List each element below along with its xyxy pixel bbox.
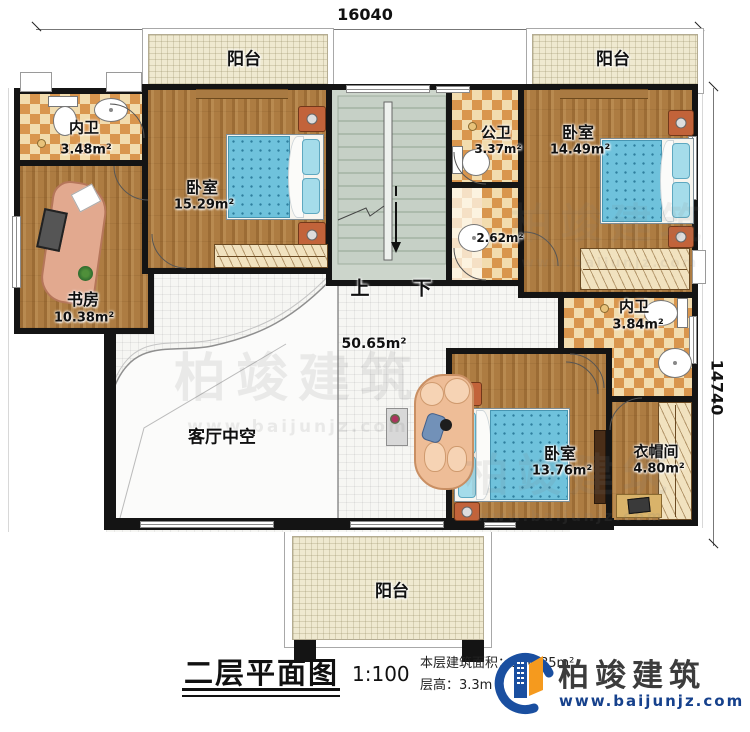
stair-rail: [384, 102, 392, 260]
window: [350, 521, 444, 528]
room-area-bath-top-left: 3.48m²: [60, 144, 111, 157]
room-label-balcony-bottom: 阳台: [375, 584, 409, 601]
floor-plan: 16040 14740: [0, 0, 750, 732]
pilaster: [692, 250, 706, 284]
tall-cabinet-icon: [594, 430, 606, 504]
wardrobe-rail: [217, 256, 325, 257]
window: [12, 216, 21, 288]
logo-building-blue: [514, 658, 527, 698]
bed-mattress: [602, 140, 662, 222]
person-head: [440, 419, 452, 431]
nightstand-icon: [668, 110, 694, 136]
title-underline: [182, 695, 340, 697]
room-area-vanity: 2.62m²: [476, 232, 523, 244]
balcony-door-sill: [560, 89, 648, 99]
title-underline: [182, 688, 340, 691]
room-label-bath-right: 内卫: [619, 300, 649, 315]
room-label-living-void: 客厅中空: [188, 430, 256, 447]
chair-cushion: [420, 382, 444, 406]
pilaster: [20, 72, 52, 92]
room-label-bedroom-bottom: 卧室: [544, 446, 576, 462]
chair-cushion: [424, 442, 446, 472]
plan-scale: 1:100: [352, 662, 410, 686]
stairs-down-label: 下: [412, 280, 431, 299]
dimension-right-value: 14740: [708, 358, 727, 418]
room-label-closet: 衣帽间: [633, 445, 678, 460]
room-area-bath-public: 3.37m²: [474, 143, 521, 155]
sink-icon: [94, 98, 128, 122]
window: [346, 85, 430, 93]
floor-height-note: 层高：3.3m: [420, 674, 492, 693]
pillow-icon: [672, 143, 690, 179]
laptop-icon: [627, 497, 650, 514]
logo-name: 柏竣建筑: [558, 650, 706, 695]
sink-icon: [658, 348, 692, 378]
pillow-icon: [672, 182, 690, 218]
plant-icon: [78, 266, 93, 281]
nightstand-icon: [668, 226, 694, 248]
nightstand-icon: [454, 502, 480, 521]
wall-left-lower: [104, 328, 116, 530]
pillow-icon: [302, 178, 320, 214]
toilet-icon: [677, 298, 688, 328]
stairs-icon: [332, 90, 452, 280]
room-label-balcony-top-right: 阳台: [596, 52, 630, 69]
room-label-bath-public: 公卫: [481, 126, 511, 141]
window: [436, 86, 470, 93]
balcony-door-sill: [196, 89, 288, 99]
wardrobe-rail: [583, 269, 687, 270]
plan-title: 二层平面图: [184, 650, 339, 692]
dimension-line-right: [713, 88, 714, 546]
eave-line: [702, 92, 703, 528]
room-stairs: [326, 84, 458, 286]
wardrobe-icon: [214, 244, 328, 268]
towel-hook-icon: [600, 304, 609, 313]
room-label-bedroom-top-right: 卧室: [562, 125, 594, 141]
room-label-study: 书房: [67, 292, 99, 308]
room-label-bedroom-top-left: 卧室: [186, 180, 218, 196]
nightstand-icon: [298, 106, 326, 132]
room-area-study: 10.38m²: [54, 312, 114, 325]
chair-cushion: [447, 446, 467, 472]
logo-url: www.baijunjz.com: [559, 692, 744, 710]
room-area-closet: 4.80m²: [633, 463, 684, 476]
room-area-bedroom-bottom: 13.76m²: [532, 465, 592, 478]
towel-hook-icon: [37, 139, 46, 148]
room-area-bedroom-top-right: 14.49m²: [550, 144, 610, 157]
hall-area-label: 50.65m²: [341, 337, 406, 351]
dimension-top-value: 16040: [320, 5, 410, 24]
towel-hook-icon: [468, 122, 477, 131]
eave-line: [8, 88, 9, 532]
chair-cushion: [444, 378, 470, 404]
pilaster: [106, 72, 142, 92]
logo-icon: [492, 646, 554, 716]
room-area-bath-right: 3.84m²: [612, 319, 663, 332]
room-label-balcony-top-left: 阳台: [227, 52, 261, 69]
room-label-bath-top-left: 内卫: [69, 121, 99, 136]
wardrobe-icon: [580, 248, 690, 290]
room-area-bedroom-top-left: 15.29m²: [174, 199, 234, 212]
window: [140, 521, 274, 528]
pillow-icon: [302, 139, 320, 175]
flowers-icon: [390, 414, 400, 424]
stairs-up-label: 上: [350, 280, 369, 299]
bed-mattress: [228, 136, 290, 218]
window: [484, 522, 516, 528]
